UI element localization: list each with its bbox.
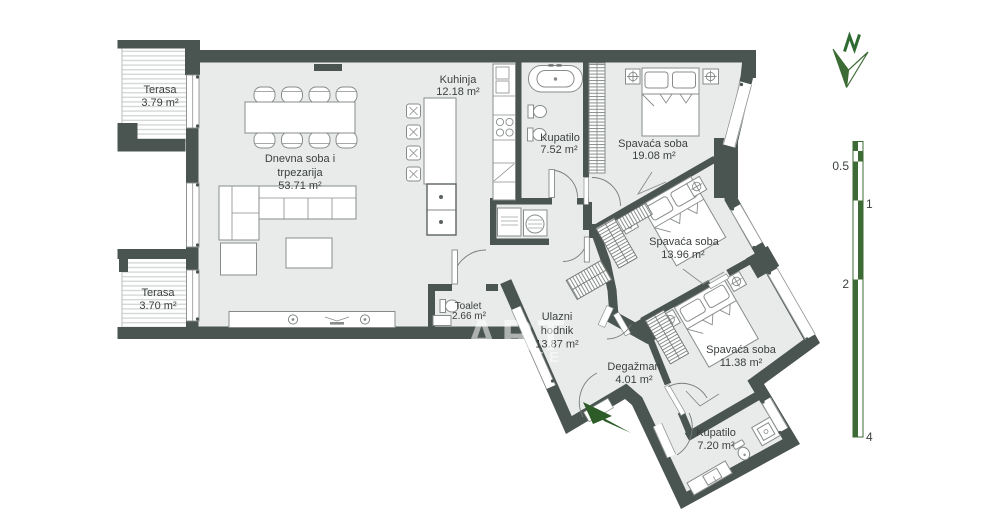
svg-text:Kupatilo: Kupatilo (696, 427, 736, 439)
svg-text:4.01 m²: 4.01 m² (615, 374, 653, 386)
svg-text:trpezarija: trpezarija (277, 167, 323, 179)
svg-text:19.08 m²: 19.08 m² (632, 150, 676, 162)
svg-text:1: 1 (866, 197, 873, 211)
svg-text:7.20 m²: 7.20 m² (697, 440, 735, 452)
svg-text:Kuhinja: Kuhinja (440, 74, 478, 86)
svg-text:2: 2 (842, 277, 849, 291)
svg-text:Spavaća soba: Spavaća soba (706, 344, 777, 356)
svg-text:HITE: HITE (507, 349, 565, 366)
svg-text:Dnevna soba i: Dnevna soba i (265, 153, 335, 165)
svg-text:53.71 m²: 53.71 m² (278, 180, 322, 192)
svg-text:Spavaća soba: Spavaća soba (649, 236, 720, 248)
svg-text:13.96 m²: 13.96 m² (661, 249, 705, 261)
svg-text:Spavaća soba: Spavaća soba (618, 138, 689, 150)
svg-text:3.70 m²: 3.70 m² (139, 300, 177, 312)
svg-text:Degažman: Degažman (607, 361, 660, 373)
svg-text:7.52 m²: 7.52 m² (540, 144, 578, 156)
svg-text:12.18 m²: 12.18 m² (436, 86, 480, 98)
svg-text:4: 4 (866, 430, 873, 444)
svg-text:3.79 m²: 3.79 m² (141, 97, 179, 109)
svg-text:11.38 m²: 11.38 m² (720, 357, 763, 369)
svg-text:0.5: 0.5 (832, 159, 849, 173)
svg-text:Terasa: Terasa (143, 84, 177, 96)
svg-text:Kupatilo: Kupatilo (540, 132, 580, 144)
svg-text:Terasa: Terasa (141, 287, 175, 299)
